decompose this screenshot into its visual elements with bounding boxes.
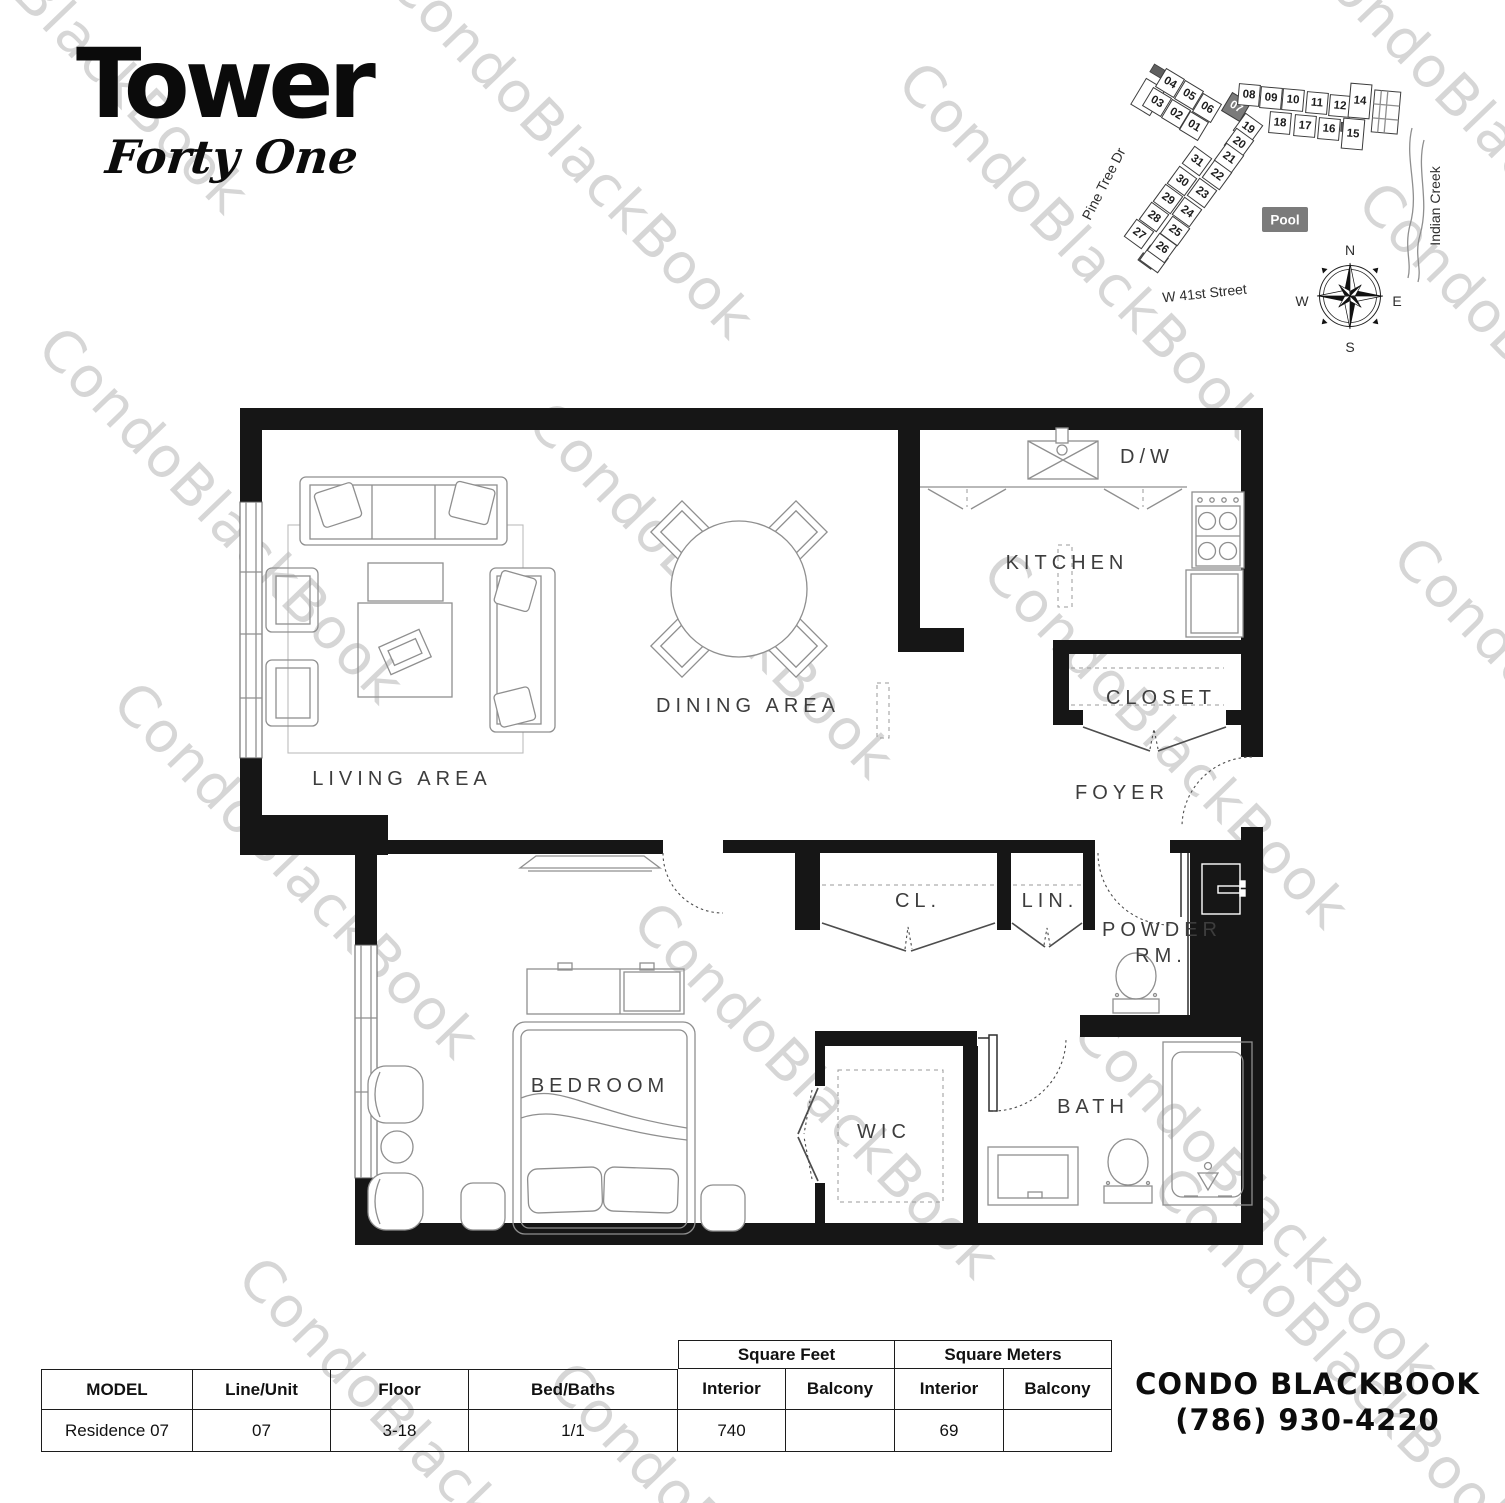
- room-label-living: LIVING AREA: [312, 768, 492, 790]
- loveseat: [490, 568, 555, 732]
- stair-block: [1371, 90, 1401, 134]
- watermark-text: CondoBlackBook: [970, 540, 1362, 943]
- compass-s-label: S: [1345, 339, 1354, 355]
- room-label-closet: CLOSET: [1106, 687, 1216, 709]
- pool: Pool: [1262, 207, 1308, 232]
- svg-text:09: 09: [1264, 91, 1278, 104]
- watermark-text: CondoBlackBook: [1345, 170, 1505, 573]
- site-map-unit-18: 18: [1269, 112, 1292, 135]
- vanity-sink: [988, 1147, 1078, 1205]
- bath-door-arc: [993, 1038, 1066, 1111]
- table-cell-sqft-interior: 740: [678, 1410, 786, 1452]
- site-map-unit-11: 11: [1306, 92, 1329, 115]
- room-label-dishwasher: D/W: [1120, 446, 1174, 468]
- svg-text:08: 08: [1242, 88, 1256, 101]
- watermark-text: CondoBlackBook: [1380, 525, 1505, 928]
- svg-text:14: 14: [1353, 94, 1367, 107]
- table-group-square-meters: Square Meters: [895, 1340, 1112, 1369]
- table-header-sqft-balcony: Balcony: [786, 1369, 895, 1410]
- site-map-unit-14: 14: [1348, 83, 1372, 119]
- watermark-text: CondoBlackBook: [1140, 1155, 1505, 1503]
- table-header-sqm-balcony: Balcony: [1004, 1369, 1112, 1410]
- street-indian-creek: Indian Creek: [1427, 165, 1443, 245]
- tv: [520, 856, 660, 871]
- cl-closet-bifold: [822, 923, 995, 951]
- watermark-text: CondoBlackBook: [375, 0, 767, 353]
- compass-n-label: N: [1345, 242, 1355, 258]
- room-label-bedroom: BEDROOM: [531, 1075, 669, 1097]
- table-header-sqm-interior: Interior: [895, 1369, 1004, 1410]
- site-map-unit-16: 16: [1318, 118, 1341, 141]
- kitchen-sink: [1028, 428, 1098, 479]
- room-label-powder-2: RM.: [1135, 945, 1187, 967]
- bedroom-chair: [368, 1066, 423, 1123]
- site-map-unit-09: 09: [1260, 87, 1283, 110]
- svg-text:11: 11: [1310, 96, 1324, 109]
- street-pine-tree: Pine Tree Dr: [1079, 145, 1129, 223]
- ottoman: [461, 1183, 505, 1230]
- ottoman: [701, 1185, 745, 1231]
- svg-text:15: 15: [1346, 127, 1360, 140]
- room-label-cl: CL.: [895, 890, 941, 912]
- table-cell-bed-baths: 1/1: [469, 1410, 678, 1452]
- svg-text:10: 10: [1286, 93, 1300, 106]
- stove: [1192, 492, 1244, 568]
- plan-canvas: CondoBlackBook CondoBlackBook CondoBlack…: [0, 0, 1505, 1503]
- table-group-square-feet: Square Feet: [678, 1340, 895, 1369]
- bath-door-leaf: [989, 1035, 997, 1111]
- sofa: [300, 477, 507, 545]
- table-cell-line-unit: 07: [193, 1410, 331, 1452]
- kitchen-fixtures: [920, 428, 1244, 637]
- table-header-floor: Floor: [331, 1369, 469, 1410]
- table-header-sqft-interior: Interior: [678, 1369, 786, 1410]
- cabinet-marks: [928, 489, 1182, 509]
- svg-text:12: 12: [1333, 99, 1347, 112]
- svg-text:16: 16: [1322, 122, 1336, 135]
- compass-e-label: E: [1392, 293, 1401, 309]
- living-room-window: [240, 502, 262, 758]
- room-label-lin: LIN.: [1022, 890, 1079, 912]
- table-header-model: MODEL: [41, 1369, 193, 1410]
- table-cell-sqm-interior: 69: [895, 1410, 1004, 1452]
- logo-title: Tower: [76, 36, 371, 132]
- street-w41st: W 41st Street: [1161, 281, 1247, 306]
- refrigerator: [1186, 570, 1243, 637]
- room-label-foyer: FOYER: [1075, 782, 1169, 804]
- logo: Tower Forty One: [76, 36, 371, 180]
- room-label-bath: BATH: [1057, 1096, 1129, 1118]
- dining-furniture: [651, 501, 827, 677]
- table-header-bed-baths: Bed/Baths: [469, 1369, 678, 1410]
- site-map-unit-08: 08: [1238, 84, 1261, 107]
- room-label-wic: WIC: [857, 1121, 911, 1143]
- bedroom-chair: [368, 1173, 423, 1230]
- svg-text:18: 18: [1273, 116, 1287, 129]
- armchair: [266, 660, 318, 726]
- site-map-unit-17: 17: [1294, 115, 1317, 138]
- compass-rose: [1317, 263, 1383, 329]
- table-cell-model: Residence 07: [41, 1410, 193, 1452]
- floor-plan: LIVING AREA DINING AREA KITCHEN D/W CLOS…: [240, 408, 1263, 1245]
- logo-subtitle: Forty One: [104, 134, 374, 180]
- compass-w-label: W: [1295, 293, 1309, 309]
- powder-door-arc: [1098, 853, 1170, 925]
- toilet: [1104, 1139, 1152, 1203]
- lin-closet-bifold: [1012, 923, 1082, 947]
- table-cell-sqm-balcony: [1004, 1410, 1112, 1452]
- contact-phone: (786) 930-4220: [1125, 1402, 1490, 1438]
- contact-company: CONDO BLACKBOOK: [1125, 1366, 1490, 1402]
- table-spacer: [41, 1340, 678, 1369]
- contact-block: CONDO BLACKBOOK (786) 930-4220: [1125, 1366, 1490, 1438]
- table-header-line-unit: Line/Unit: [193, 1369, 331, 1410]
- dining-table: [671, 521, 807, 657]
- table-cell-floor: 3-18: [331, 1410, 469, 1452]
- console-table: [368, 563, 443, 601]
- table-cell-sqft-balcony: [786, 1410, 895, 1452]
- room-label-kitchen: KITCHEN: [1006, 552, 1129, 574]
- floor-plan-page: CondoBlackBook CondoBlackBook CondoBlack…: [0, 0, 1505, 1503]
- site-map-units: 0405060302010708091011121418171615192021…: [1124, 69, 1372, 263]
- bed: [513, 1022, 695, 1234]
- living-room-furniture: [266, 477, 555, 753]
- room-label-dining: DINING AREA: [656, 695, 840, 717]
- watermark-text: CondoBlackBook: [100, 670, 492, 1073]
- svg-text:17: 17: [1298, 119, 1312, 132]
- bedroom-window: [355, 945, 377, 1178]
- spec-table: Square Feet Square Meters MODEL Line/Uni…: [41, 1340, 1112, 1452]
- side-table: [381, 1131, 413, 1163]
- room-label-powder-1: POWDER: [1102, 919, 1222, 941]
- site-map-unit-10: 10: [1282, 89, 1305, 112]
- site-map-unit-15: 15: [1341, 118, 1365, 150]
- pool-label: Pool: [1270, 213, 1299, 228]
